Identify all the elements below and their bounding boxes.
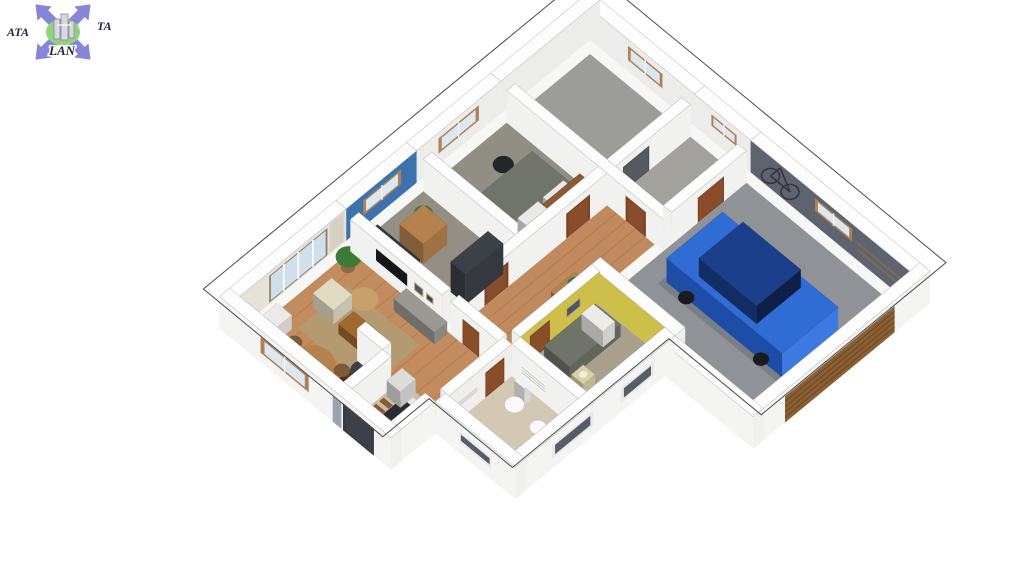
toilet-bowl: [505, 397, 524, 413]
logo-text-right: TA: [97, 19, 112, 33]
table-lamp: [579, 371, 588, 378]
car-wheel: [753, 352, 769, 365]
hanging-chair: [349, 287, 378, 311]
page-background: ATA TA LAN: [0, 0, 1024, 582]
logo-text-left: ATA: [6, 25, 29, 39]
floorplan-3d-render: [0, 0, 1024, 582]
company-logo: ATA TA LAN: [4, 2, 122, 68]
car-wheel: [678, 291, 694, 304]
dining-chair: [334, 364, 350, 377]
logo-text-bottom: LAN: [48, 43, 76, 58]
